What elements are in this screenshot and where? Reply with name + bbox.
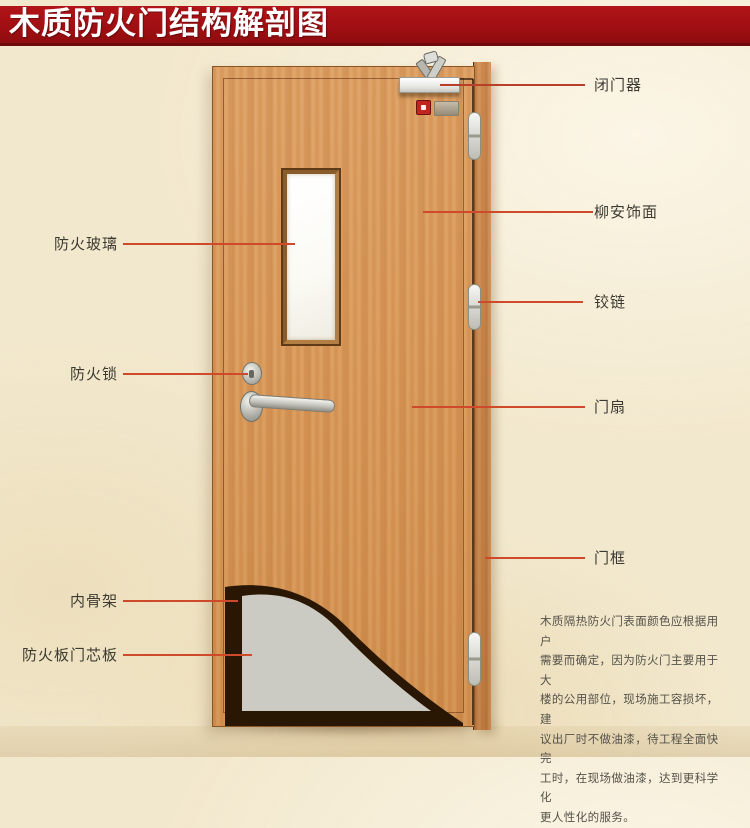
label-door-frame: 门框 xyxy=(594,548,626,568)
alarm-indicator-dot xyxy=(421,105,426,110)
leaf-frame-gap xyxy=(472,79,474,725)
leader-door-leaf xyxy=(412,406,585,408)
title-banner: 木质防火门结构解剖图 xyxy=(0,6,750,46)
leader-fire-board-core xyxy=(123,654,252,656)
leader-lauan-veneer xyxy=(423,211,593,213)
leader-inner-skeleton xyxy=(123,600,238,602)
fire-glass-window xyxy=(283,170,339,344)
label-hinge: 铰链 xyxy=(594,292,626,312)
label-inner-skeleton: 内骨架 xyxy=(70,591,118,611)
hinge-bottom xyxy=(468,632,481,686)
fire-core-panel xyxy=(242,594,431,711)
label-fire-lock: 防火锁 xyxy=(70,364,118,384)
leader-door-closer xyxy=(440,84,585,86)
label-fire-glass: 防火玻璃 xyxy=(54,234,118,254)
leader-fire-lock xyxy=(123,373,248,375)
hinge-top xyxy=(468,112,481,160)
leader-fire-glass xyxy=(123,243,295,245)
description-text: 木质隔热防火门表面颜色应根据用户 需要而确定，因为防火门主要用于大 楼的公用部位… xyxy=(540,612,730,828)
page-title: 木质防火门结构解剖图 xyxy=(9,9,329,40)
alarm-indicator xyxy=(416,100,431,115)
label-door-closer: 闭门器 xyxy=(594,75,642,95)
label-plate xyxy=(434,101,459,116)
door-frame xyxy=(473,62,491,730)
leader-door-frame xyxy=(485,557,585,559)
label-door-leaf: 门扇 xyxy=(594,397,626,417)
keyhole xyxy=(249,370,254,378)
hinge-middle xyxy=(468,284,481,330)
label-fire-board-core: 防火板门芯板 xyxy=(22,645,118,665)
label-lauan-veneer: 柳安饰面 xyxy=(594,202,658,222)
leader-hinge xyxy=(478,301,583,303)
